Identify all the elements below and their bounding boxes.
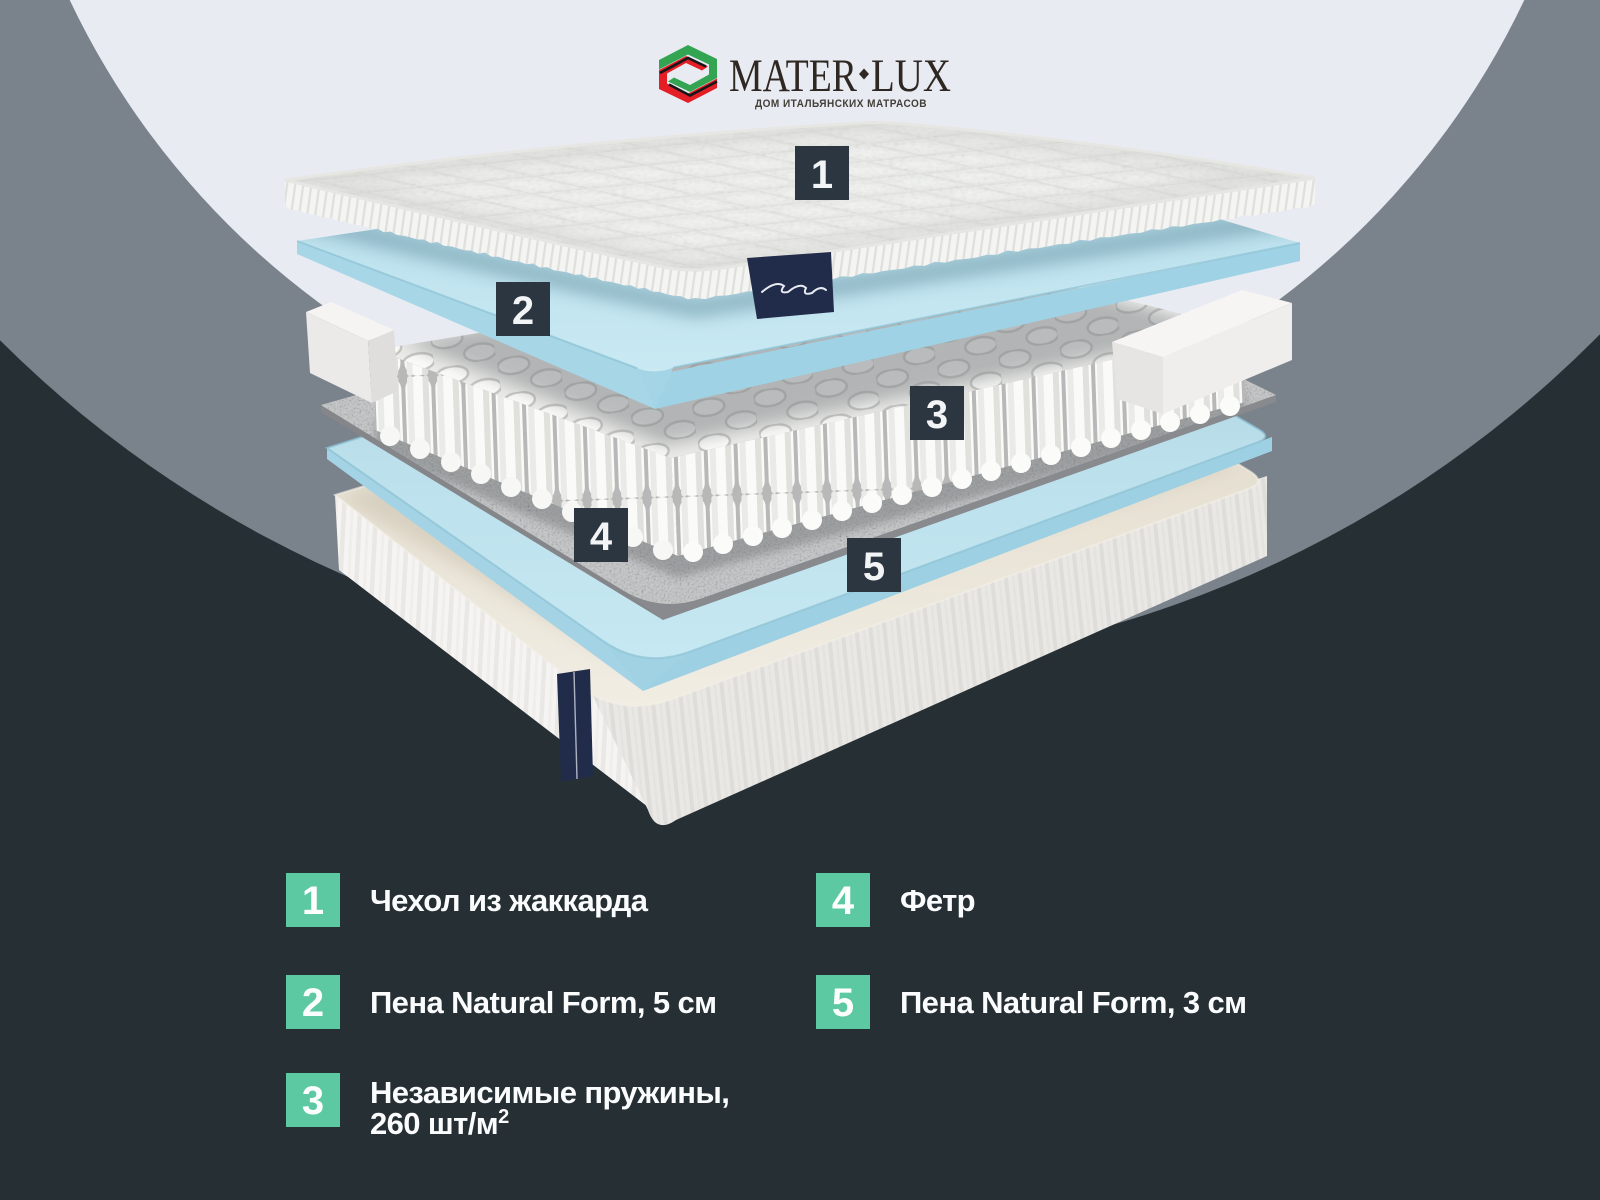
svg-text:1: 1 <box>811 153 833 197</box>
svg-text:3: 3 <box>926 393 948 437</box>
svg-text:3: 3 <box>302 1079 324 1123</box>
svg-text:Пена Natural Form, 5 см: Пена Natural Form, 5 см <box>370 985 716 1020</box>
svg-text:2: 2 <box>302 981 324 1025</box>
svg-text:260 шт/м2: 260 шт/м2 <box>370 1106 509 1141</box>
svg-text:1: 1 <box>302 879 324 923</box>
svg-text:5: 5 <box>832 981 854 1025</box>
svg-text:ДОМ ИТАЛЬЯНСКИХ МАТРАСОВ: ДОМ ИТАЛЬЯНСКИХ МАТРАСОВ <box>755 98 927 110</box>
svg-text:4: 4 <box>590 515 613 559</box>
svg-text:Пена Natural Form, 3 см: Пена Natural Form, 3 см <box>900 985 1246 1020</box>
svg-text:Фетр: Фетр <box>900 883 975 918</box>
svg-text:Независимые пружины,: Независимые пружины, <box>370 1075 729 1110</box>
svg-text:LUX: LUX <box>871 50 951 102</box>
svg-text:Чехол из жаккарда: Чехол из жаккарда <box>370 883 649 918</box>
svg-text:2: 2 <box>512 289 534 333</box>
svg-text:MATER: MATER <box>729 50 858 102</box>
svg-text:5: 5 <box>863 545 885 589</box>
svg-text:4: 4 <box>832 879 855 923</box>
